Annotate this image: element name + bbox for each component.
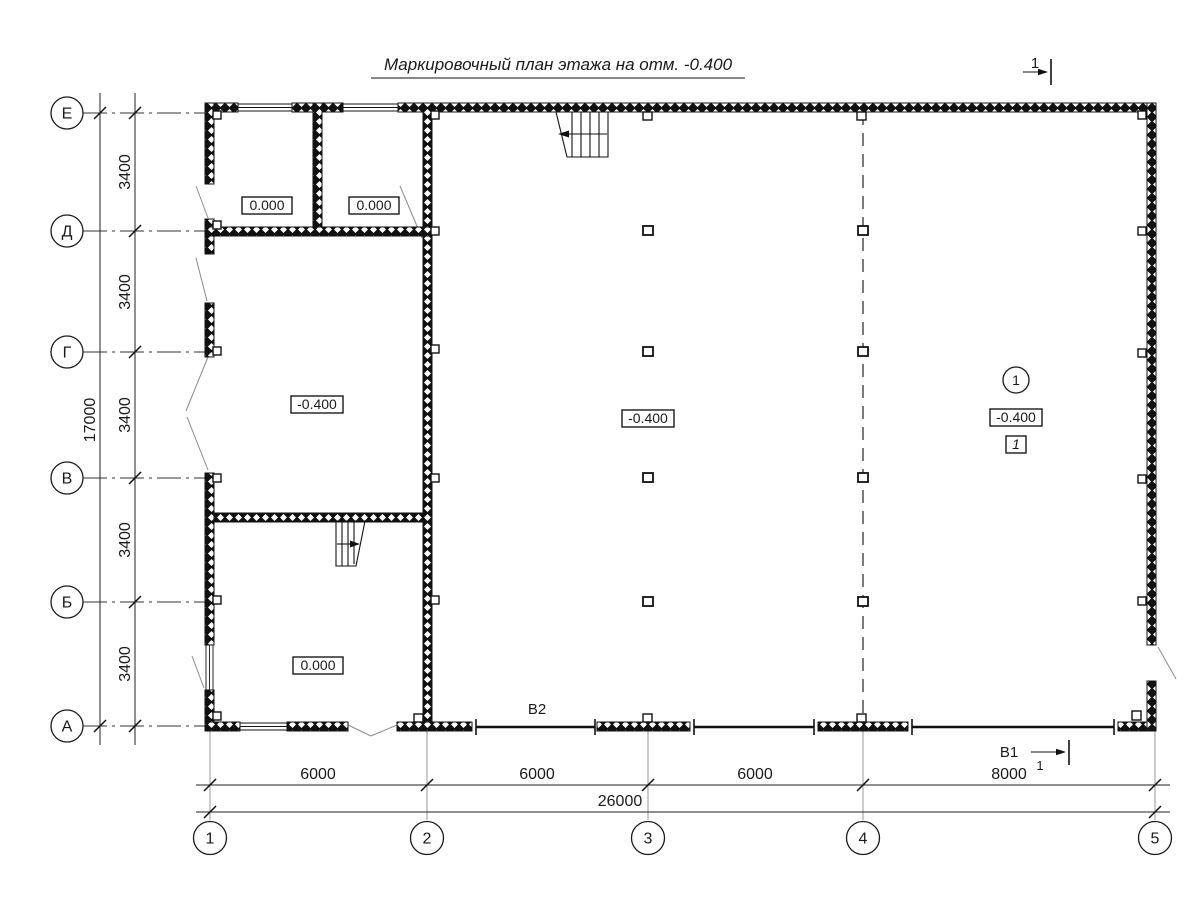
axis-label-col-4: 4 (859, 831, 868, 848)
page-title: Маркировочный план этажа на отм. -0.400 (384, 55, 733, 74)
axis-label-row-v: В (62, 471, 73, 488)
axis-label-col-5: 5 (1151, 831, 1160, 848)
stair-top-icon (556, 112, 608, 157)
dim-col-2: 6000 (737, 766, 773, 783)
elevation-room-top-2: 0.000 (356, 197, 391, 213)
lintel-beams (476, 719, 1114, 735)
view-arrow-icon (1056, 749, 1066, 755)
axis-label-col-3: 3 (644, 831, 653, 848)
drawing-title: Маркировочный план этажа на отм. -0.400 (371, 55, 745, 78)
floor-plan-drawing: Маркировочный план этажа на отм. -0.400 (0, 0, 1200, 900)
axis-bubbles-rows: Е Д Г В Б А (51, 97, 83, 742)
dim-col-3: 8000 (991, 766, 1027, 783)
section-number-label: 1 (1031, 55, 1039, 72)
elevation-hall-center: -0.400 (628, 410, 668, 426)
axis-label-row-e: Е (62, 106, 73, 123)
dim-total-height: 17000 (82, 398, 99, 443)
dim-col-1: 6000 (519, 766, 555, 783)
axis-label-row-b: Б (62, 595, 73, 612)
dim-row-1: 3400 (117, 274, 134, 310)
room-number-label: 1 (1012, 372, 1020, 388)
view-b1-label: В1 (1000, 744, 1018, 761)
floor-type-label: 1 (1012, 436, 1020, 452)
elevation-room-mid-left: -0.400 (297, 396, 337, 412)
dim-row-4: 3400 (117, 646, 134, 682)
dim-row-2: 3400 (117, 397, 134, 433)
axis-label-row-a: А (62, 719, 73, 736)
elevation-marks: 0.000 0.000 -0.400 -0.400 -0.400 0.000 (242, 197, 1042, 674)
stair-bottom-icon (336, 521, 365, 566)
dim-row-3: 3400 (117, 522, 134, 558)
dim-col-0: 6000 (300, 766, 336, 783)
view-b1-number: 1 (1036, 758, 1043, 773)
axis-label-col-1: 1 (206, 831, 215, 848)
dimension-texts: 17000 3400 3400 3400 3400 3400 6000 6000… (82, 154, 1027, 810)
axis-label-row-d: Д (62, 224, 73, 241)
axis-label-col-2: 2 (423, 831, 432, 848)
section-mark-top: 1 (1023, 55, 1051, 85)
elevation-room-bottom: 0.000 (300, 657, 335, 673)
column-markers (643, 226, 868, 606)
section-arrow-icon (1038, 69, 1048, 75)
drawing-sheet: Маркировочный план этажа на отм. -0.400 (0, 0, 1200, 900)
axis-bubbles-cols: 1 2 3 4 5 (194, 822, 1172, 855)
elevation-room-top-1: 0.000 (249, 197, 284, 213)
dim-total-width: 26000 (598, 793, 643, 810)
beam-b2-label: В2 (528, 701, 546, 718)
dim-row-0: 3400 (117, 154, 134, 190)
opening-leader-lines (186, 186, 1176, 736)
axis-label-row-g: Г (63, 345, 72, 362)
elevation-hall-right: -0.400 (996, 409, 1036, 425)
